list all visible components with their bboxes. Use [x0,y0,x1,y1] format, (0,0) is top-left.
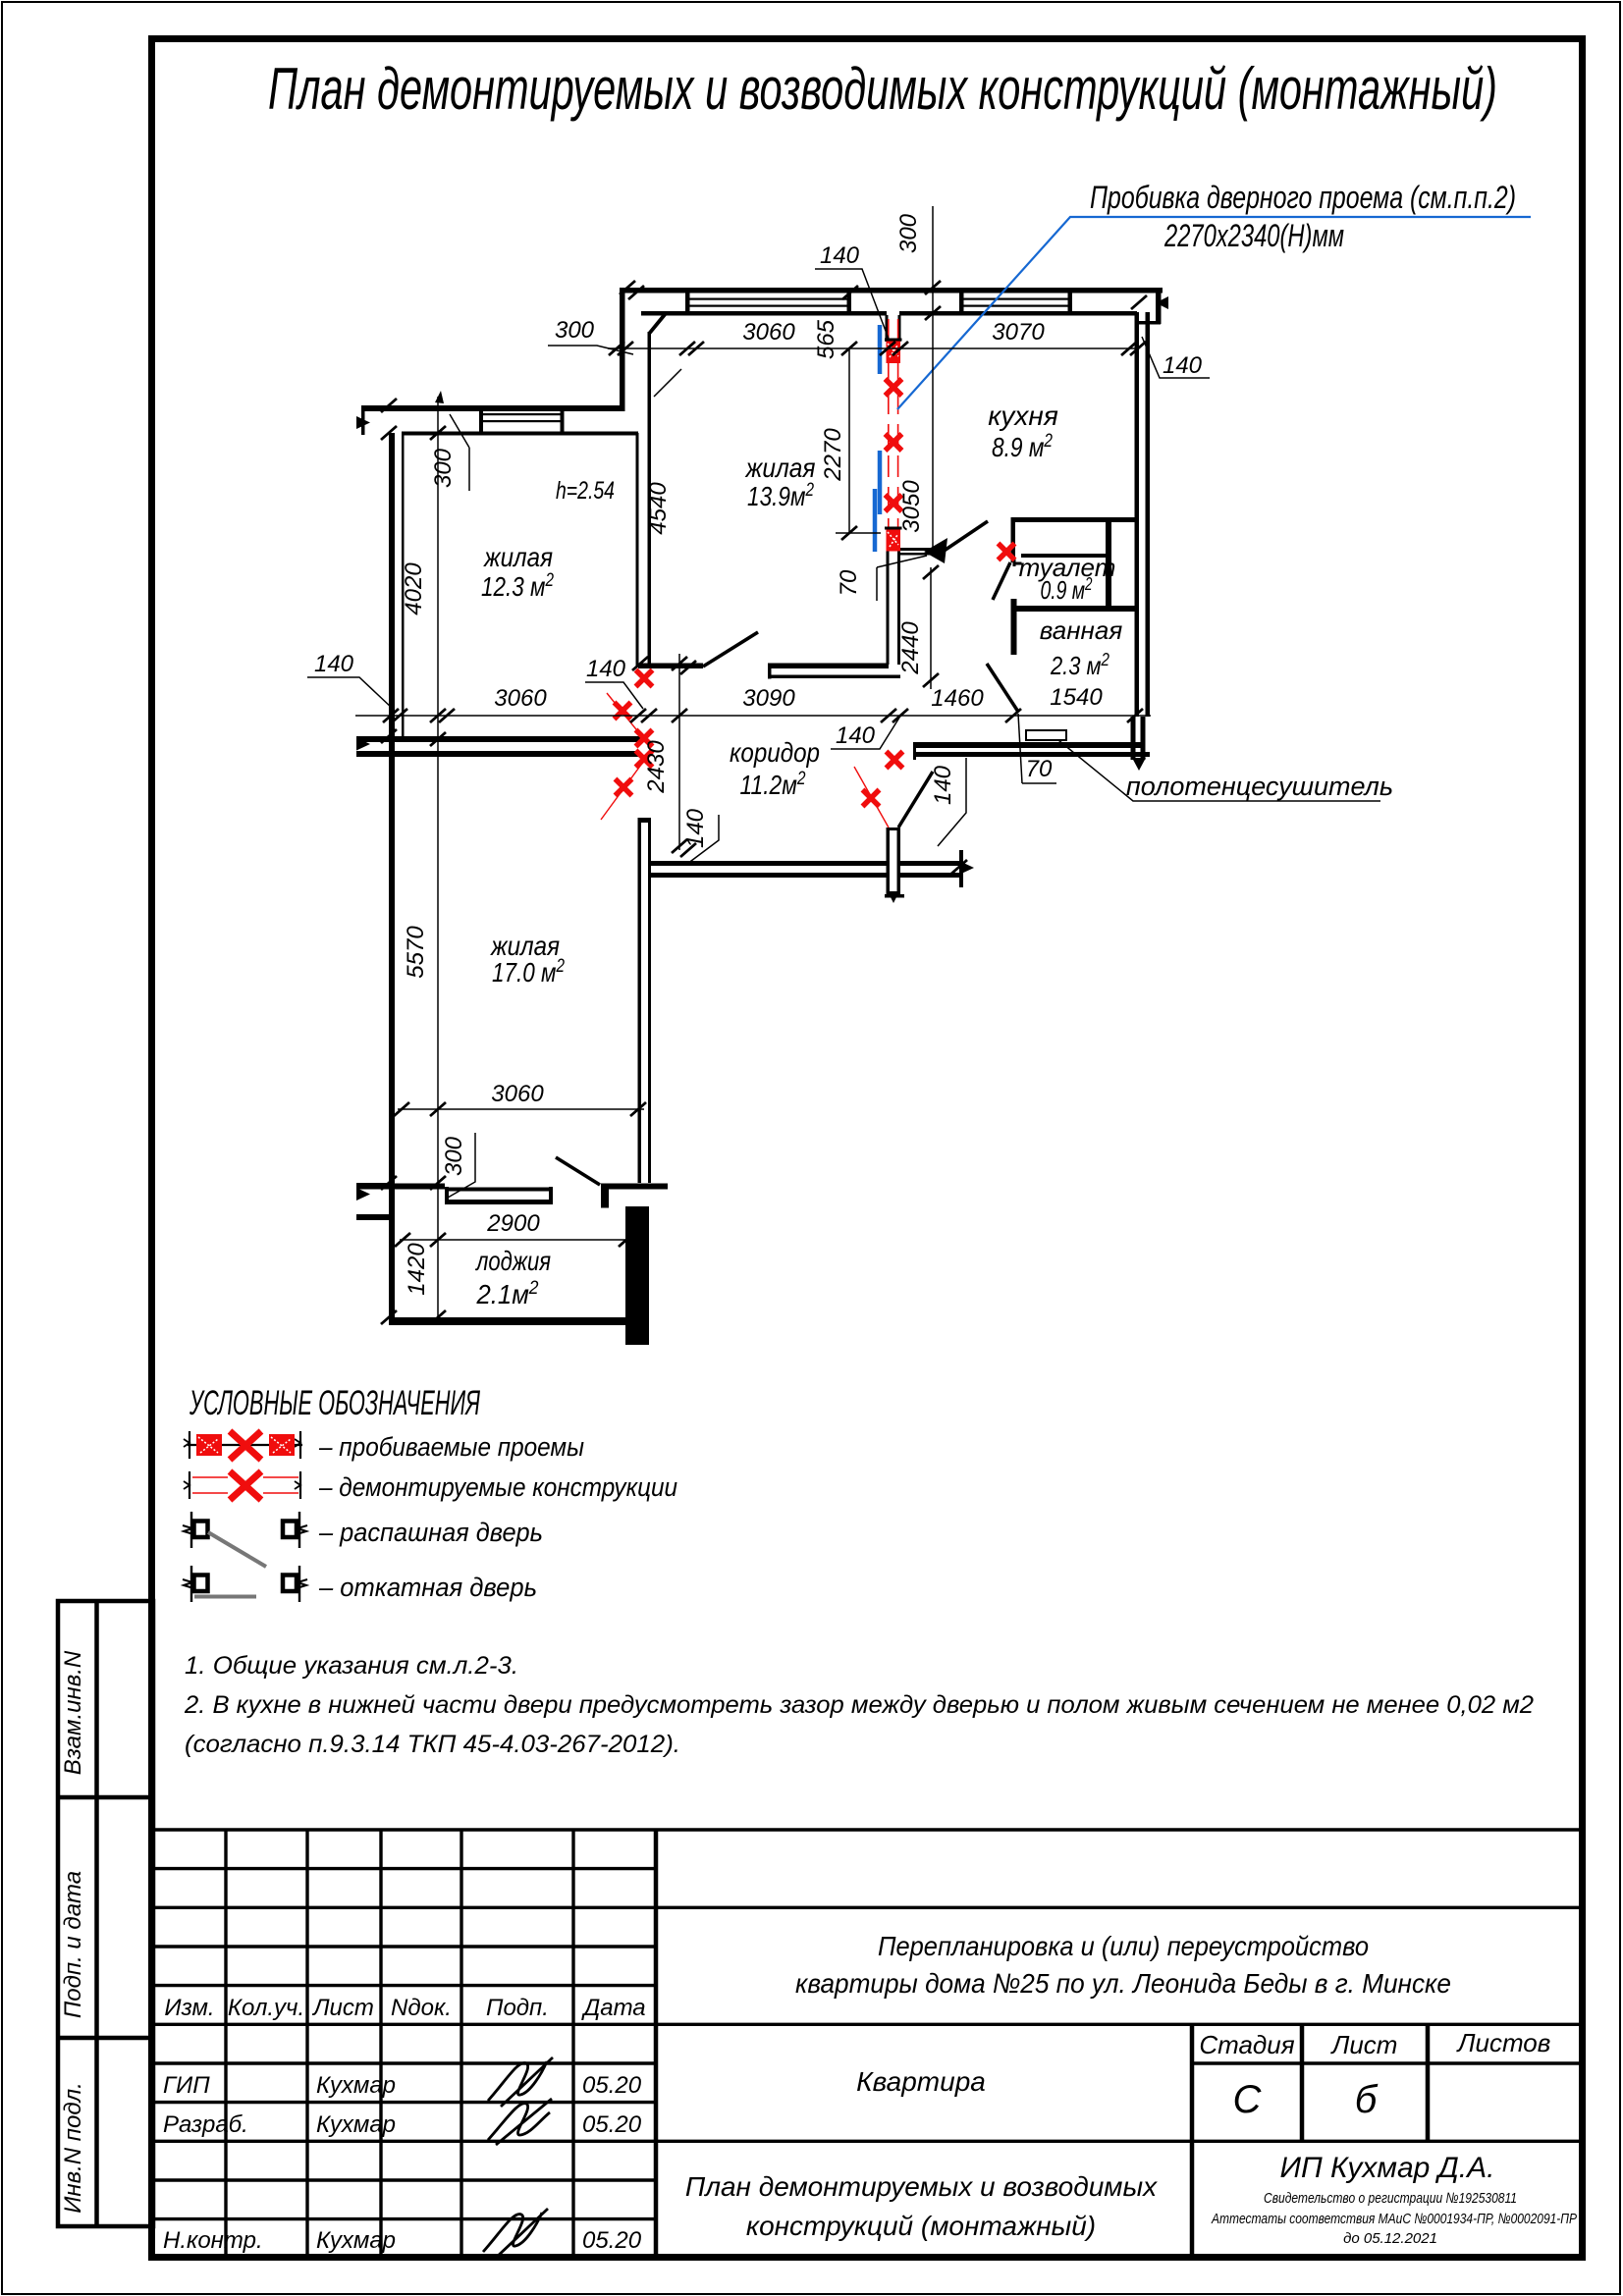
svg-text:140: 140 [836,722,876,749]
svg-text:2440: 2440 [897,621,924,675]
svg-text:Изм.: Изм. [164,1995,214,2021]
svg-text:Лист: Лист [1330,2030,1398,2059]
svg-text:3060: 3060 [494,685,547,712]
svg-text:0.9 м2: 0.9 м2 [1041,574,1093,605]
svg-text:140: 140 [586,656,626,682]
svg-text:ванная: ванная [1040,615,1123,645]
svg-text:Перепланировка и (или) переуст: Перепланировка и (или) переустройство [878,1931,1369,1961]
svg-text:140: 140 [1163,352,1203,379]
svg-text:– пробиваемые проемы: – пробиваемые проемы [318,1432,584,1462]
svg-text:Стадия: Стадия [1199,2030,1294,2059]
svg-text:3070: 3070 [992,319,1045,346]
svg-text:Кухмар: Кухмар [316,2227,396,2254]
svg-text:1. Общие указания см.л.2-3.: 1. Общие указания см.л.2-3. [185,1652,518,1680]
svg-text:Листов: Листов [1456,2028,1551,2057]
svg-text:2900: 2900 [486,1210,540,1237]
svg-text:140: 140 [314,651,354,677]
svg-text:05.20: 05.20 [582,2072,642,2099]
svg-text:Подп.: Подп. [486,1995,549,2021]
svg-text:С: С [1233,2078,1263,2121]
svg-text:300: 300 [895,213,922,253]
svg-text:3090: 3090 [742,685,795,712]
svg-text:2270: 2270 [820,428,846,482]
svg-text:05.20: 05.20 [582,2227,642,2254]
svg-text:8.9 м2: 8.9 м2 [992,431,1053,462]
svg-text:1420: 1420 [404,1243,430,1296]
svg-text:Аттестаты соответствия МАиС №0: Аттестаты соответствия МАиС №0001934-ПР,… [1211,2211,1577,2227]
svg-text:Н.контр.: Н.контр. [163,2227,263,2254]
svg-text:1460: 1460 [931,685,984,712]
svg-text:лоджия: лоджия [474,1246,551,1276]
svg-text:Nдок.: Nдок. [391,1995,452,2021]
svg-text:ГИП: ГИП [163,2072,210,2099]
svg-text:70: 70 [836,569,862,596]
svg-text:2270х2340(Н)мм: 2270х2340(Н)мм [1163,218,1344,253]
svg-text:300: 300 [430,448,457,488]
svg-text:конструкций (монтажный): конструкций (монтажный) [746,2211,1096,2241]
svg-text:Дата: Дата [580,1995,645,2021]
svg-text:План демонтируемых и возводимы: План демонтируемых и возводимых [685,2171,1158,2202]
svg-text:Кухмар: Кухмар [316,2111,396,2138]
svg-text:5570: 5570 [403,926,429,979]
svg-text:140: 140 [930,765,956,805]
svg-text:ИП Кухмар Д.А.: ИП Кухмар Д.А. [1280,2152,1495,2184]
svg-text:1540: 1540 [1050,684,1103,711]
svg-text:70: 70 [1026,756,1053,782]
svg-text:140: 140 [682,808,709,848]
svg-text:17.0 м2: 17.0 м2 [492,956,565,988]
svg-text:Лист: Лист [311,1995,374,2021]
svg-text:Пробивка дверного проема (см.п: Пробивка дверного проема (см.п.п.2) [1090,180,1516,215]
svg-text:140: 140 [820,242,860,269]
svg-text:Подп. и дата: Подп. и дата [60,1871,86,2018]
svg-text:коридор: коридор [730,737,820,768]
svg-text:12.3 м2: 12.3 м2 [481,570,554,602]
svg-text:2. В кухне в нижней части двер: 2. В кухне в нижней части двери предусмо… [184,1691,1534,1719]
svg-text:300: 300 [555,317,595,344]
svg-text:Инв.N подл.: Инв.N подл. [60,2082,86,2214]
svg-text:жилая: жилая [744,453,816,483]
svg-text:Взам.инв.N: Взам.инв.N [60,1650,86,1775]
svg-text:– откатная дверь: – откатная дверь [318,1573,537,1602]
svg-text:– распашная дверь: – распашная дверь [318,1518,543,1547]
svg-text:3060: 3060 [491,1081,544,1107]
svg-text:2.1м2: 2.1м2 [476,1278,539,1309]
svg-text:План демонтируемых и возвод: План демонтируемых и возводимых конструк… [268,56,1497,122]
svg-text:2.3 м2: 2.3 м2 [1050,650,1109,680]
svg-text:11.2м2: 11.2м2 [740,769,806,800]
svg-text:3050: 3050 [898,480,925,533]
svg-text:05.20: 05.20 [582,2111,642,2138]
svg-text:УСЛОВНЫЕ ОБОЗНАЧЕНИЯ: УСЛОВНЫЕ ОБОЗНАЧЕНИЯ [189,1384,480,1422]
svg-text:565: 565 [813,319,839,359]
svg-text:2430: 2430 [643,740,670,794]
svg-text:до 05.12.2021: до 05.12.2021 [1343,2230,1437,2247]
svg-text:4540: 4540 [645,482,672,535]
svg-text:– демонтируемые конструкции: – демонтируемые конструкции [318,1472,677,1502]
svg-text:жилая: жилая [482,542,553,572]
svg-text:Кухмар: Кухмар [316,2072,396,2099]
svg-text:3060: 3060 [742,319,795,346]
svg-text:Квартира: Квартира [856,2066,986,2097]
svg-text:Кол.уч.: Кол.уч. [228,1995,304,2021]
svg-text:б: б [1355,2078,1379,2121]
svg-text:13.9м2: 13.9м2 [747,480,814,511]
svg-text:(согласно п.9.3.14 ТКП 45-4.0: (согласно п.9.3.14 ТКП 45-4.03-267-2012)… [185,1731,680,1758]
svg-text:кухня: кухня [988,400,1058,431]
svg-text:4020: 4020 [401,562,427,615]
svg-text:300: 300 [441,1136,467,1176]
svg-text:Разраб.: Разраб. [163,2111,248,2138]
svg-text:h=2.54: h=2.54 [556,477,615,505]
svg-text:полотенцесушитель: полотенцесушитель [1126,772,1393,801]
svg-text:Свидетельство о регистрации №1: Свидетельство о регистрации №192530811 [1264,2190,1517,2207]
svg-text:квартиры дома №25 по ул. Леони: квартиры дома №25 по ул. Леонида Беды в … [795,1968,1451,1999]
